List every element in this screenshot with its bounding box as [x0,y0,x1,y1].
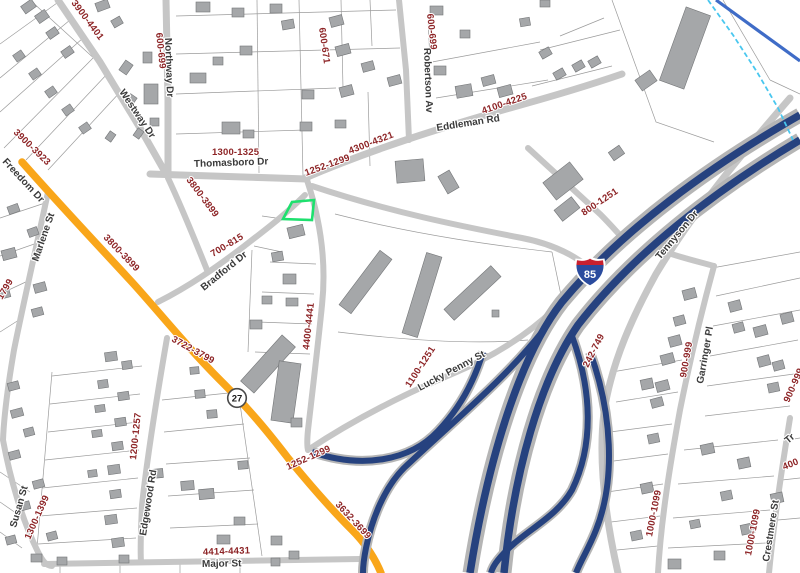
building [714,551,725,560]
street-label-robertson-av: Robertson Av [421,48,434,114]
building [283,274,296,284]
building [88,469,98,477]
building [757,355,771,368]
building [114,417,126,426]
building [286,298,298,306]
building [5,535,17,545]
parcel-line [166,458,250,464]
building [8,450,21,461]
building [659,7,710,89]
street-label-eddleman-rd: Eddleman Rd [436,113,501,134]
building [13,50,26,62]
building [250,320,262,329]
parcel-line [540,30,620,50]
parcel-line [262,292,314,294]
road-east-frontage [312,186,590,268]
address-label-3900-3923: 3900-3923 [11,127,53,168]
parcel-line [684,440,778,450]
parcel-line [370,0,372,46]
map-canvas[interactable]: Freedom Dr Westway Dr Northway Dr Thomas… [0,0,800,573]
building [271,251,283,262]
address-label-4400-4441: 4400-4441 [301,302,317,351]
building [682,287,697,300]
building [238,461,249,470]
parcel-line [710,340,798,356]
roads [3,0,790,573]
building [109,489,121,498]
building [46,27,60,40]
parcel-line [610,424,672,432]
address-label-4414-4431: 4414-4431 [203,545,251,558]
building [553,68,567,80]
building [240,46,252,55]
building [588,56,602,68]
parcel-line [716,278,800,296]
building [640,378,654,390]
building [728,300,742,313]
parcel-line [45,450,139,460]
building [10,408,24,419]
building [7,203,20,214]
building [119,555,129,563]
parcel-line [42,478,138,488]
address-label-900-999-east: 900-999 [782,367,800,405]
street-label-marlene-st: Marlene St [30,211,57,263]
building [46,531,58,541]
building [95,404,106,412]
address-label-1200-1257: 1200-1257 [128,412,144,460]
building [339,84,354,97]
building [190,367,200,375]
parcel-line [299,0,303,176]
building [143,52,152,63]
parcel-line [176,48,400,54]
building [105,131,116,142]
building [1,247,17,260]
building [689,519,700,529]
building [650,397,664,409]
parcel-line [270,262,316,264]
parcel-line [248,250,252,352]
route-27-number: 27 [232,394,243,405]
address-label-3800-3899-bradford: 3800-3899 [184,175,221,219]
building [207,410,218,419]
creek-solid-line [716,0,800,61]
parcel-line [176,130,305,134]
building [281,19,294,30]
building [668,335,682,348]
building [300,122,312,131]
building [608,145,624,161]
parcel-line [778,518,800,520]
building [121,360,132,369]
building [647,433,660,444]
building [732,322,745,334]
building [434,66,446,75]
building [196,2,210,12]
building [119,60,133,75]
parcel-line [164,424,244,432]
address-label-600-699-robertson: 600-699 [424,13,439,50]
building [195,390,206,399]
building [271,536,282,545]
building [104,351,117,362]
building [111,537,124,548]
building [234,517,245,525]
building [655,379,670,392]
building [181,480,195,490]
building [97,379,108,388]
building [772,360,785,372]
building [190,73,206,83]
building [302,90,314,99]
building [217,535,230,544]
building [387,74,402,86]
building [361,61,375,73]
address-label-1799-partial: 1799 [0,277,16,301]
address-label-3722-3799: 3722-3799 [170,334,217,367]
building [33,282,47,294]
parcel-line [341,0,343,88]
building [339,250,392,313]
road-robertson-av [399,0,409,140]
building [144,84,158,104]
parcel-line [36,372,52,560]
building [660,352,675,365]
building [111,441,123,450]
building [21,0,37,14]
road-freedom-dr [22,162,381,573]
building [753,324,768,337]
parcel-line [707,374,794,386]
building [62,104,75,116]
building [23,427,35,437]
building [287,224,305,239]
street-label-major-st: Major St [202,558,242,570]
building [554,197,580,222]
building [291,418,302,427]
i85-shield-number: 85 [584,269,596,281]
parcel-line [705,406,790,416]
building [95,0,110,12]
parcel-line [616,392,678,402]
parcel-line [560,18,604,36]
building [271,361,301,423]
building [289,551,299,559]
building [737,457,751,469]
building [199,488,215,499]
building [402,252,442,337]
building [540,0,550,7]
parcel-line [338,332,528,342]
building [673,315,686,327]
building [31,307,44,318]
building [117,391,129,400]
building [539,47,553,59]
parcel-line [432,42,540,62]
building [700,443,715,455]
building [222,122,240,134]
freedom-dr-fill [22,162,381,573]
building [79,122,92,134]
building [111,16,124,28]
building [519,17,530,27]
address-label-600-671: 600-671 [316,27,332,65]
building [262,296,272,304]
building [438,170,459,194]
building [57,557,67,565]
building [271,558,280,566]
parcel-line [606,454,668,462]
parcel-line [782,478,800,480]
building [213,57,223,65]
building [31,554,42,562]
road-garringer-pl [658,266,714,573]
street-label-crestmere-st: Crestmere St [761,499,782,563]
parcel-line [617,546,658,550]
parcel-line [770,80,800,94]
parcel-line [678,476,774,484]
building [481,74,496,86]
building [270,4,282,13]
building [460,30,470,38]
building [767,382,780,393]
route-27-shield: 27 [228,389,247,408]
building [335,120,346,128]
building [92,429,103,437]
building [492,310,499,317]
building [720,490,733,501]
building [572,60,586,72]
street-label-thomasboro-dr: Thomasboro Dr [194,156,269,170]
building [29,68,42,80]
building [104,514,117,525]
parcel-line [712,252,800,268]
building [35,9,50,23]
address-label-1300-1325: 1300-1325 [212,147,260,158]
building [107,464,120,475]
building [335,43,351,56]
parcel-line [254,246,282,252]
building [395,159,425,183]
building [455,84,473,99]
parcel-line [40,508,137,516]
building [630,530,643,541]
building [232,8,244,17]
building [243,130,254,138]
building [668,559,681,569]
road-thomasboro-dr [150,174,307,179]
